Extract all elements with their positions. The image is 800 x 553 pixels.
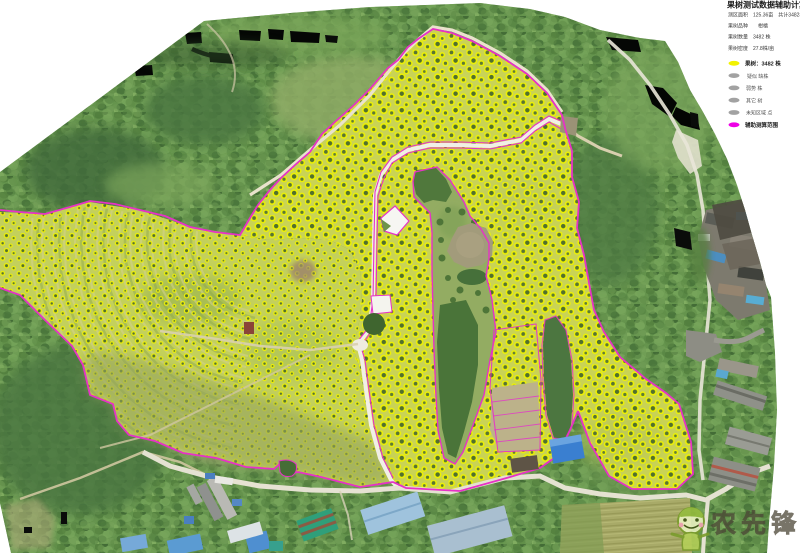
svg-text:疑似 缺株: 疑似 缺株 xyxy=(747,73,768,80)
svg-text:测区面积 125.36亩 共计3482株: 测区面积 125.36亩 共计3482株 xyxy=(728,12,800,19)
svg-text:弱势 株: 弱势 株 xyxy=(746,85,762,92)
svg-text:其它 树: 其它 树 xyxy=(746,97,762,104)
svg-text:果树密度 27.8株/亩: 果树密度 27.8株/亩 xyxy=(728,45,774,52)
svg-text:果树数量 3482 株: 果树数量 3482 株 xyxy=(728,34,771,41)
svg-text:果树测试数据辅助计算情况统计: 果树测试数据辅助计算情况统计 xyxy=(726,0,800,10)
svg-text:果树：3482 株: 果树：3482 株 xyxy=(744,60,781,68)
svg-text:辅助测算范围: 辅助测算范围 xyxy=(745,121,779,129)
svg-text:农先锋: 农先锋 xyxy=(710,509,800,538)
svg-text:未知区域 点: 未知区域 点 xyxy=(746,110,772,117)
svg-text:果树品种 柑橘: 果树品种 柑橘 xyxy=(728,23,768,30)
